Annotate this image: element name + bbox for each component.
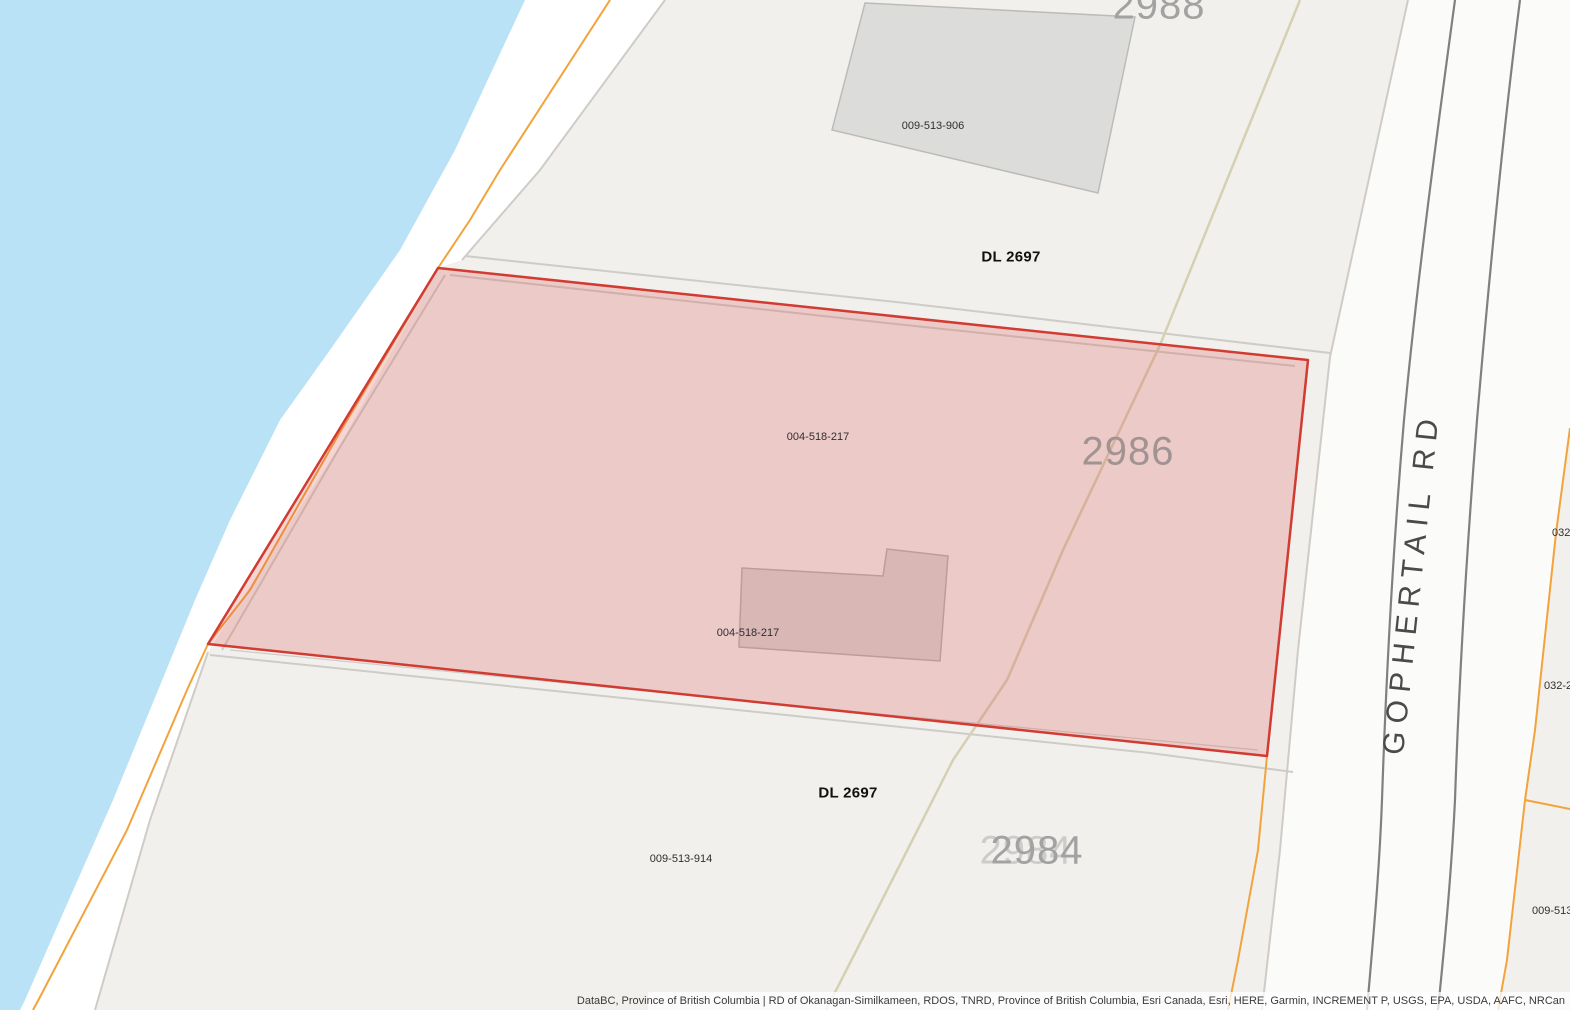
map-canvas[interactable]: 2988 2986 2984 2984 DL 2697 DL 2697 009-… bbox=[0, 0, 1570, 1010]
pid-label-032-clipped-b: 032-2 bbox=[1544, 680, 1570, 692]
attribution-text: DataBC, Province of British Columbia | R… bbox=[577, 995, 1565, 1007]
pid-label-009-513-clipped: 009-513-9 bbox=[1532, 905, 1570, 917]
pid-label-032-clipped-a: 032- bbox=[1552, 527, 1570, 539]
parcel-basemap bbox=[0, 0, 1570, 1010]
attribution-bar: DataBC, Province of British Columbia | R… bbox=[648, 992, 1570, 1010]
